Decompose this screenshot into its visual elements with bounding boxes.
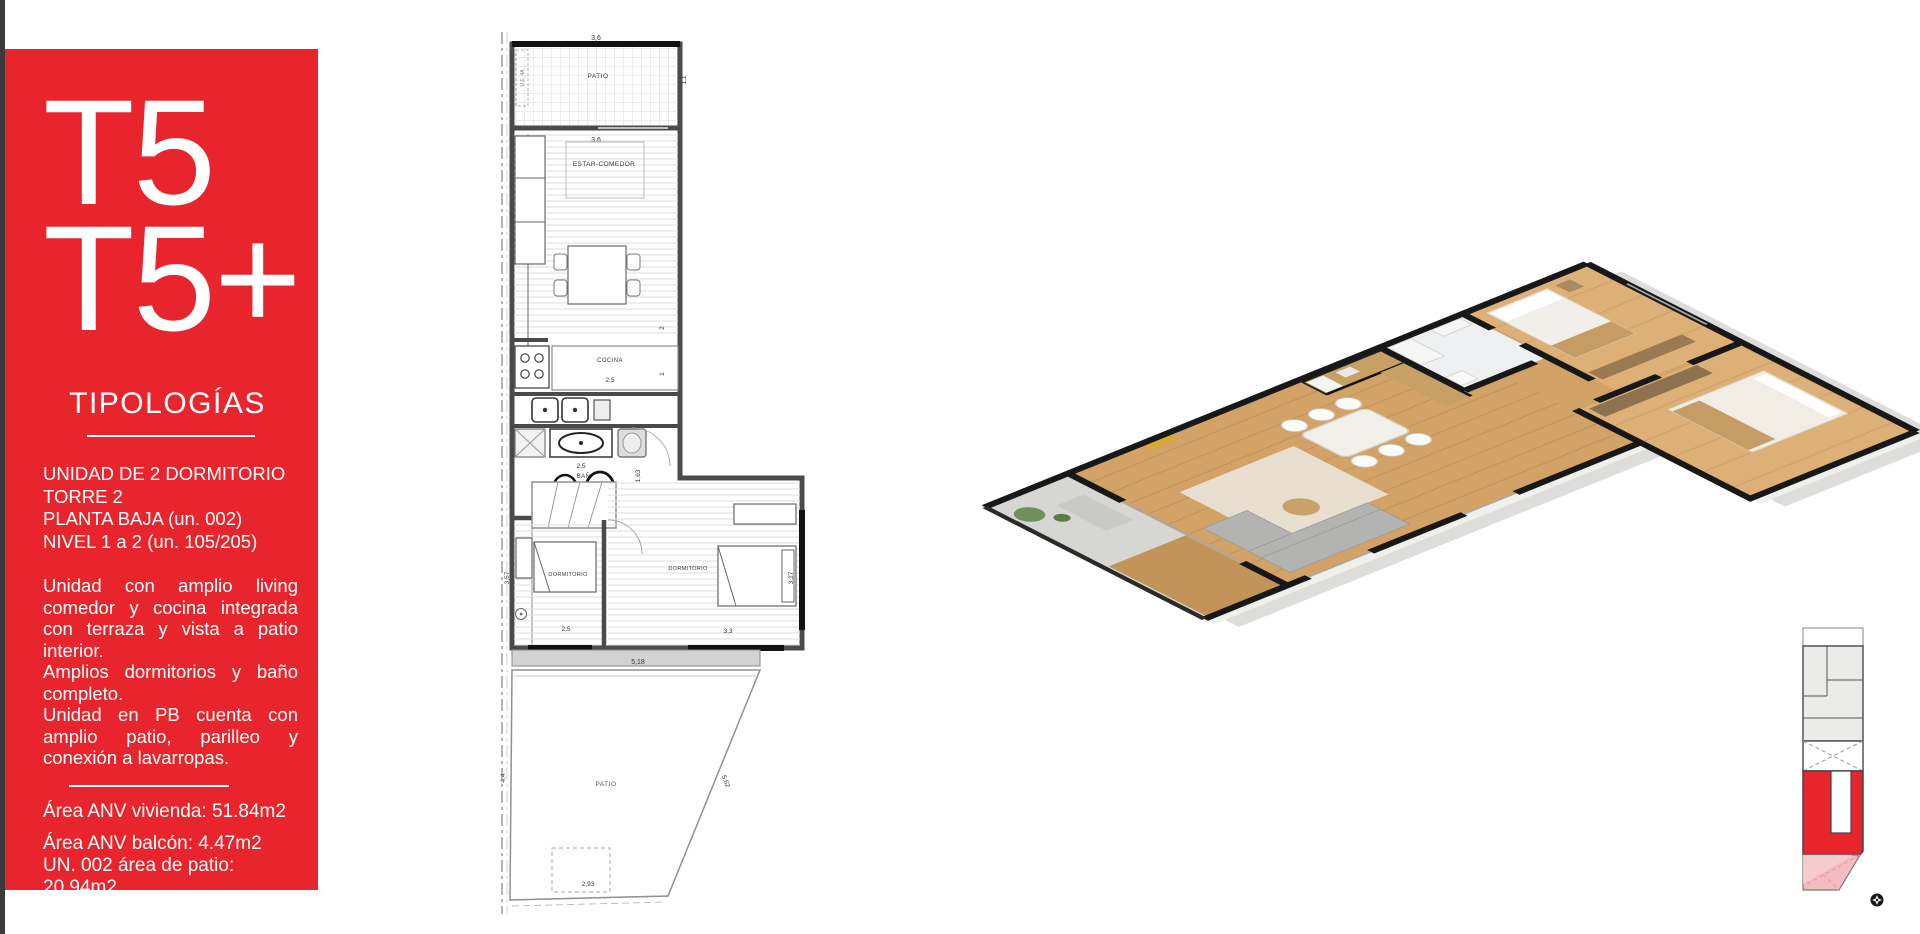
patio-top-label: PATIO	[587, 73, 608, 80]
section-title: TIPOLOGÍAS	[43, 387, 298, 421]
bedroom2: DORMITORIO 3,3 3,27	[608, 480, 800, 646]
patio-bottom-label: PATIO	[595, 781, 616, 788]
keyplan-outline	[1803, 628, 1863, 771]
unit-info: UNIDAD DE 2 DORMITORIO TORRE 2 PLANTA BA…	[43, 463, 298, 553]
area-vivienda: Área ANV vivienda: 51.84m2	[43, 801, 298, 823]
unit-info-line: NIVEL 1 a 2 (un. 105/205)	[43, 531, 298, 554]
patio-top-room: U.E. 4A PATIO 3,6 1,1	[512, 35, 688, 126]
dim-bath-width: 2,5	[576, 463, 585, 470]
apartment-3d-render	[975, 172, 1920, 692]
dim-patio-diagonal: 5,62	[720, 774, 731, 789]
living-label: ESTAR-COMEDOR	[573, 161, 636, 168]
area-patio: UN. 002 área de patio: 20.94m2	[43, 855, 298, 899]
keyplan-patio-area	[1803, 855, 1860, 890]
dim-patio-top-depth: 1,1	[681, 75, 688, 84]
dim-living-width: 3,6	[591, 137, 601, 144]
keyplan	[1793, 618, 1918, 923]
dim-kitchen-depth: 2	[659, 326, 666, 330]
bedroom1-label: DORMITORIO	[548, 572, 588, 578]
kitchen-label: COCINA	[597, 358, 623, 364]
dim-patio-top-width: 3,6	[591, 35, 601, 42]
area-alfombra: Área alfombra: 46.25m2	[43, 912, 298, 934]
dim-bedroom1-width: 2,5	[561, 626, 570, 633]
patio-bottom: 5,18 PATIO 4,4 5,62 2,93	[500, 659, 760, 906]
areas-list: Área ANV vivienda: 51.84m2 Área ANV balc…	[43, 801, 298, 934]
bedroom1: DORMITORIO 2,5 3,57	[504, 520, 604, 648]
description-paragraph: Unidad con amplio living comedor y cocin…	[43, 575, 298, 661]
description-paragraph: Unidad en PB cuenta con amplio patio, pa…	[43, 704, 298, 769]
areas-divider	[69, 785, 229, 787]
title-divider	[87, 435, 255, 437]
dim-hall-width: 1	[659, 372, 666, 376]
floorplan-2d: U.E. 4A PATIO 3,6 1,1 ESTAR-COMEDOR 3,6 …	[488, 30, 818, 918]
dim-kitchen-width: 2,5	[605, 377, 614, 384]
typology-title: T5 T5+	[43, 89, 298, 341]
typology-title-t5plus: T5+	[43, 215, 298, 341]
unit-description: Unidad con amplio living comedor y cocin…	[43, 575, 298, 769]
dim-bedroom2-width: 3,3	[723, 628, 732, 635]
bedroom2-label: DORMITORIO	[668, 566, 708, 572]
compass-icon	[1871, 894, 1884, 907]
description-paragraph: Amplios dormitorios y baño completo.	[43, 661, 298, 704]
keyplan-highlight-unit	[1803, 771, 1863, 855]
dim-bedroom2-depth: 3,27	[788, 571, 795, 584]
unit-code-label: U.E. 4A	[520, 69, 526, 87]
unit-info-line: UNIDAD DE 2 DORMITORIO	[43, 463, 298, 486]
dim-patio-depth: 4,4	[500, 773, 507, 782]
dim-patio-width: 5,18	[631, 659, 645, 666]
dim-patio-bottom-width: 2,93	[582, 881, 595, 888]
unit-info-line: TORRE 2	[43, 486, 298, 509]
unit-info-line: PLANTA BAJA (un. 002)	[43, 508, 298, 531]
sidebar: T5 T5+ TIPOLOGÍAS UNIDAD DE 2 DORMITORIO…	[5, 49, 318, 890]
area-balcon: Área ANV balcón: 4.47m2	[43, 833, 298, 855]
dim-bedroom1-depth: 3,57	[504, 571, 511, 584]
